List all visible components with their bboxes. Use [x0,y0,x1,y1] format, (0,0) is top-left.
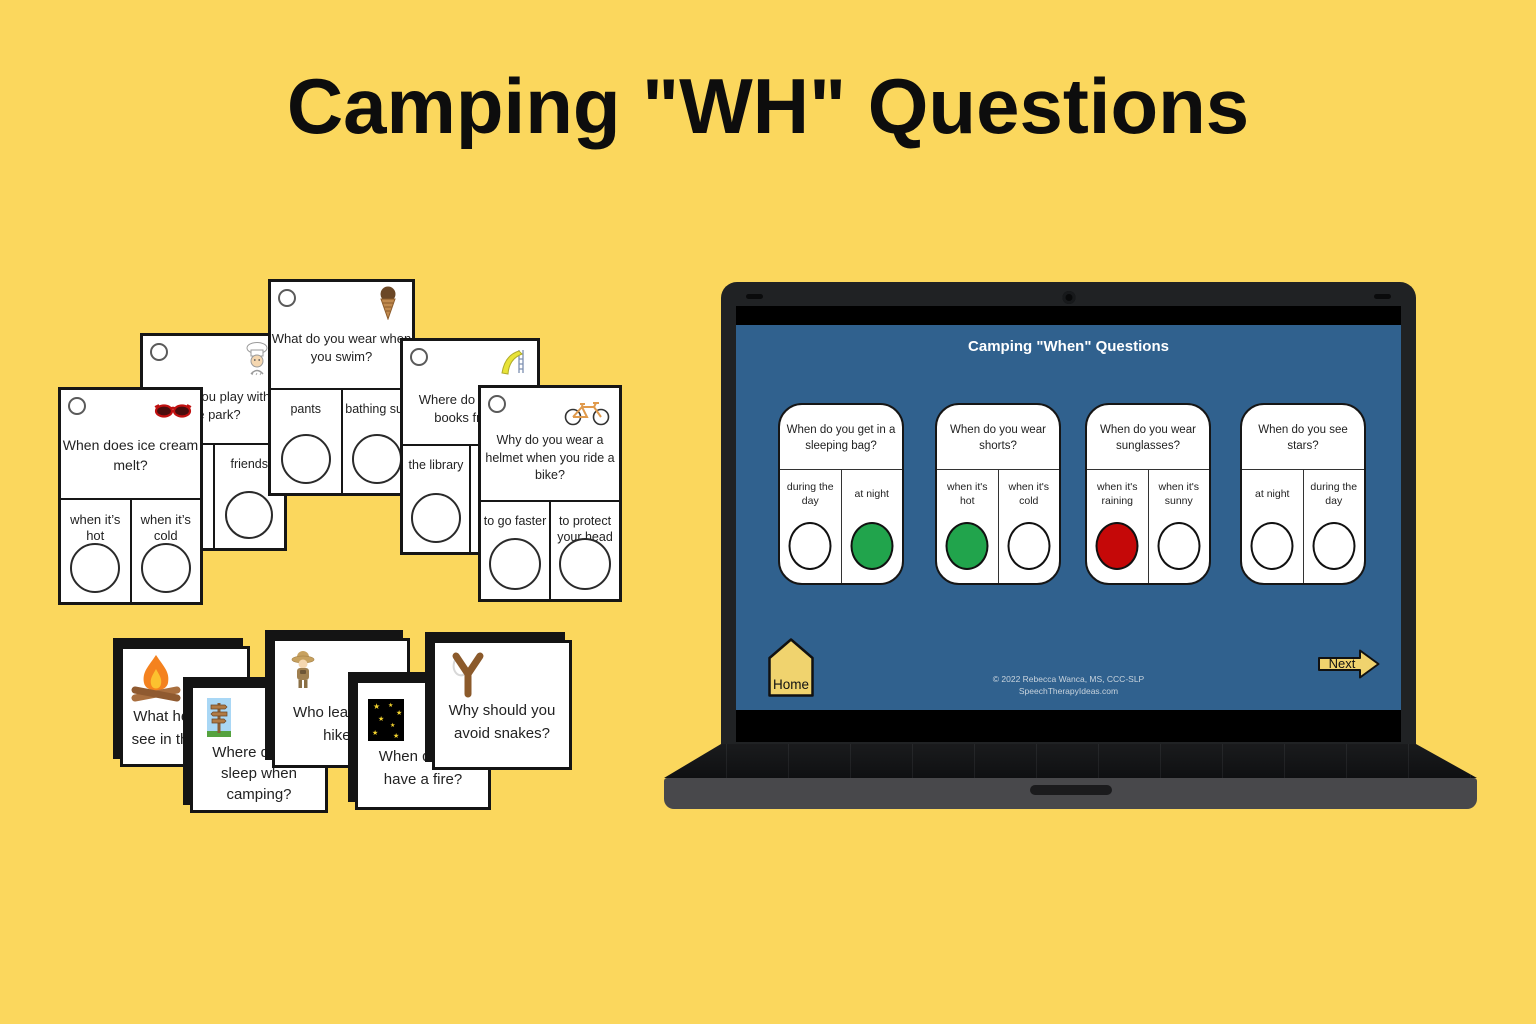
copyright-text: © 2022 Rebecca Wanca, MS, CCC-SLP [736,674,1401,684]
punch-hole-icon [278,289,296,307]
svg-text:★: ★ [388,702,393,709]
slide-canvas: Camping "When" Questions When do you get… [736,325,1401,710]
answer-option: at night [1242,470,1303,583]
next-button-label: Next [1324,656,1360,671]
answer-option: when it's raining [1087,470,1148,583]
page-title: Camping "WH" Questions [0,64,1536,150]
answer-circle [281,434,331,484]
webcam-icon [1062,291,1075,304]
answer-circle[interactable] [789,522,832,570]
card-question: Why should you avoid snakes? [435,699,569,746]
print-card-ice-cream: When does ice cream melt? when it’s hot … [58,387,203,605]
slide-question: When do you wear shorts? [937,422,1059,454]
answer-circle[interactable] [850,522,893,570]
answer-circle[interactable] [1312,522,1355,570]
answer-label: the library [403,458,469,474]
slingshot-icon [447,650,487,703]
svg-text:★: ★ [372,729,378,737]
answer-option: to protect your head [549,502,619,599]
answer-option: to go faster [481,502,549,599]
answer-circle[interactable] [1096,522,1139,570]
slide-question: When do you wear sunglasses? [1087,422,1209,454]
website-text: SpeechTherapyIdeas.com [736,686,1401,696]
answer-option: during the day [1303,470,1365,583]
slide-icon [499,346,527,381]
night-stars-icon: ★ ★ ★ ★ ★ ★ ★ [368,699,404,746]
slide-card-shorts: When do you wear shorts? when it's hot w… [935,403,1061,585]
sunglasses-icon [154,404,192,423]
answer-option: when it's hot [937,470,998,583]
bicycle-icon [564,400,610,431]
card-question: What do you wear when you swim? [271,330,412,366]
print-card-swim: What do you wear when you swim? pants ba… [268,279,415,496]
answer-label: during the day [1304,481,1365,508]
answer-circle [141,543,191,593]
slide-card-sunglasses: When do you wear sunglasses? when it's r… [1085,403,1211,585]
slide-title: Camping "When" Questions [736,338,1401,355]
answer-option: pants [271,390,341,493]
answer-circle [411,493,461,543]
laptop-base [664,778,1477,809]
print-card-bike: Why do you wear a helmet when you ride a… [478,385,622,602]
hiker-icon [290,650,316,695]
slide-question: When do you get in a sleeping bag? [780,422,902,454]
ice-cream-cone-icon [378,286,398,325]
answer-label: to go faster [481,514,549,530]
answer-circle [225,491,273,539]
answer-circle[interactable] [1007,522,1050,570]
answer-circle [352,434,402,484]
answer-circle [70,543,120,593]
svg-text:★: ★ [373,702,380,711]
answer-option: when it's sunny [1148,470,1210,583]
answer-option: when it’s hot [61,500,130,602]
answer-label: during the day [780,481,841,508]
print-card-avoid-snakes: Why should you avoid snakes? [432,640,572,770]
svg-text:★: ★ [396,709,402,717]
laptop-trackpad-notch [1030,785,1112,795]
punch-hole-icon [410,348,428,366]
punch-hole-icon [488,395,506,413]
answer-circle [489,538,541,590]
signpost-icon [207,698,231,745]
screen-bezel: Camping "When" Questions When do you get… [736,306,1401,742]
bezel-dash-icon [1374,294,1391,299]
svg-text:★: ★ [390,722,395,729]
answer-label: when it's cold [999,481,1060,508]
svg-text:★: ★ [378,715,384,723]
slide-question: When do you see stars? [1242,422,1364,454]
card-question: When does ice cream melt? [61,436,200,475]
answer-label: when it's hot [937,481,998,508]
answer-option: when it's cold [998,470,1060,583]
punch-hole-icon [150,343,168,361]
answer-circle[interactable] [1157,522,1200,570]
laptop-screen-frame: Camping "When" Questions When do you get… [721,282,1416,748]
bezel-dash-icon [746,294,763,299]
answer-label: at night [1242,488,1303,502]
next-button[interactable]: Next [1318,649,1380,679]
answer-circle[interactable] [1251,522,1294,570]
answer-option: during the day [780,470,841,583]
answer-circle [559,538,611,590]
answer-option: at night [841,470,903,583]
answer-label: when it's sunny [1149,481,1210,508]
card-question: Why do you wear a helmet when you ride a… [481,432,619,485]
answer-label: at night [842,488,903,502]
answer-label: when it’s cold [132,512,201,545]
answer-label: when it's raining [1087,481,1148,508]
laptop-keyboard-deck [664,744,1477,778]
punch-hole-icon [68,397,86,415]
answer-option: when it’s cold [130,500,201,602]
answer-circle[interactable] [946,522,989,570]
answer-label: when it’s hot [61,512,130,545]
svg-text:★: ★ [393,732,399,740]
answer-label: pants [271,402,341,418]
slide-card-sleeping-bag: When do you get in a sleeping bag? durin… [778,403,904,585]
chef-icon [244,342,270,381]
campfire-icon [129,653,183,708]
slide-card-stars: When do you see stars? at night during t… [1240,403,1366,585]
answer-option: the library [403,446,469,552]
